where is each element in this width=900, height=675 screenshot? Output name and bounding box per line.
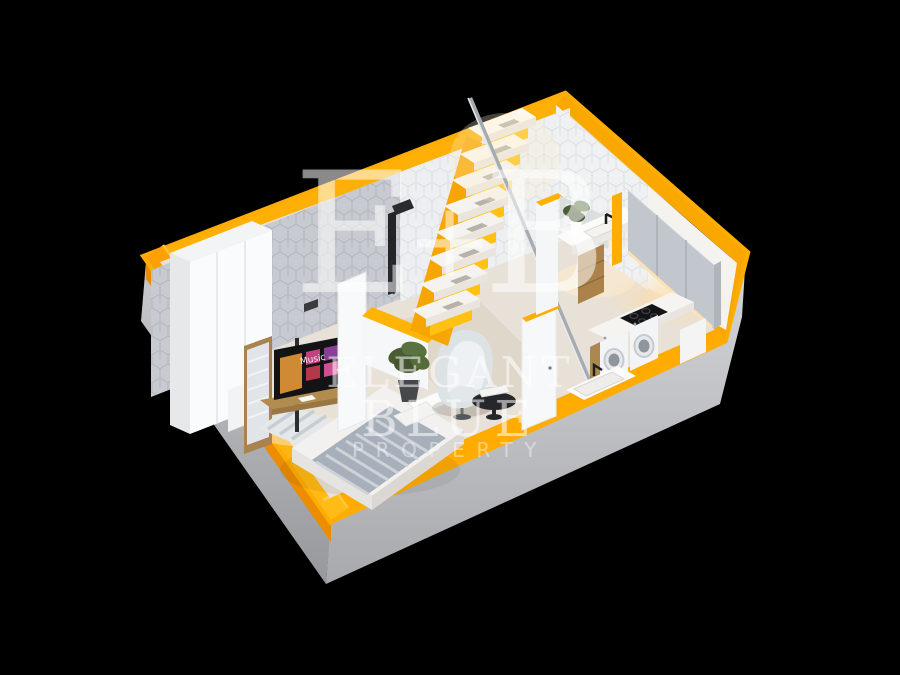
watermark: E + B ELEGANT BLUE PROPERTY Music bbox=[0, 0, 900, 675]
monogram-plus: + bbox=[406, 188, 493, 292]
floorplan-render: E + B ELEGANT BLUE PROPERTY Music bbox=[0, 0, 900, 675]
brand-line-property: PROPERTY bbox=[0, 438, 900, 462]
monogram-letter-e: E bbox=[293, 150, 416, 318]
monogram-letter-b: B bbox=[483, 150, 606, 318]
eb-monogram: E + B bbox=[0, 150, 900, 318]
